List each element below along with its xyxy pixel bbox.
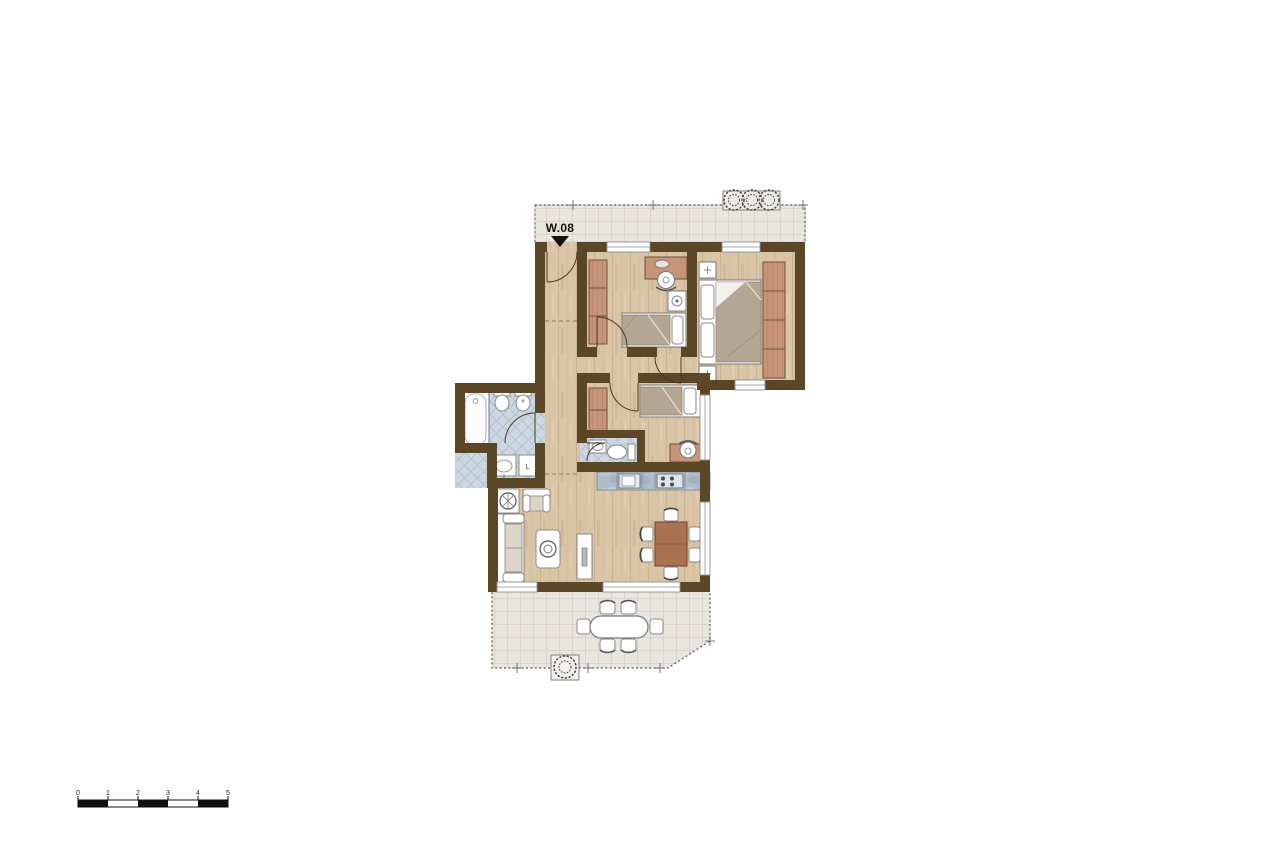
window-icon: [607, 242, 650, 252]
bed-double-icon: [699, 280, 761, 364]
side-table-icon: [497, 489, 519, 513]
wardrobe-icon: [589, 388, 607, 432]
washing-machine-label: L: [526, 464, 530, 471]
toilet-icon: [608, 444, 636, 460]
bed-single-icon: [622, 313, 686, 347]
unit-label: W.08: [546, 221, 575, 235]
scale-tick-3: 3: [166, 790, 170, 797]
master-bedroom: [699, 262, 785, 382]
window-icon: [603, 582, 680, 592]
kitchen: [597, 472, 710, 490]
scale-tick-2: 2: [136, 790, 140, 797]
dining-chair-icon: [640, 527, 653, 541]
kitchen-counter: [597, 472, 710, 490]
scale-tick-0: 0: [76, 790, 80, 797]
desk-chair-icon: [658, 272, 675, 289]
kitchen-sink-icon: [619, 474, 640, 488]
armchair-icon: [523, 489, 550, 512]
bidet-icon: [515, 390, 531, 411]
coffee-table-icon: [536, 530, 560, 568]
tv-board-icon: [577, 534, 592, 579]
planter-box: [723, 190, 780, 210]
terrace-north: [535, 190, 808, 242]
toilet-icon: [494, 390, 510, 411]
dining-chair-icon: [664, 508, 678, 521]
bed-single-icon: [640, 385, 702, 417]
sink-icon: [589, 440, 606, 453]
nightstand-icon: [699, 262, 716, 278]
terrace-door-icon: [497, 582, 537, 592]
scale-bar: 0 1 2 3 4 5: [76, 790, 230, 807]
wardrobe-icon: [763, 262, 785, 378]
scale-tick-1: 1: [106, 790, 110, 797]
window-icon: [735, 380, 765, 390]
floor-plan-drawing: L: [0, 0, 1280, 854]
sofa-icon: [497, 514, 524, 582]
scale-tick-5: 5: [226, 790, 230, 797]
terrace-south: [492, 592, 715, 680]
washing-machine-icon: L: [519, 455, 536, 476]
stove-icon: [657, 474, 683, 488]
nightstand-icon: [668, 291, 686, 311]
wardrobe-icon: [589, 260, 607, 344]
terrace-north-floor: [535, 205, 805, 242]
bathtub-icon: [462, 390, 489, 448]
window-icon: [700, 395, 710, 460]
desk-chair-icon: [680, 442, 696, 458]
window-icon: [700, 502, 710, 575]
dining-chair-icon: [640, 548, 653, 562]
floor-plan-page: L: [0, 0, 1280, 854]
dining-chair-icon: [664, 567, 678, 580]
window-icon: [722, 242, 760, 252]
planter-box: [551, 655, 579, 680]
scale-tick-4: 4: [196, 790, 200, 797]
